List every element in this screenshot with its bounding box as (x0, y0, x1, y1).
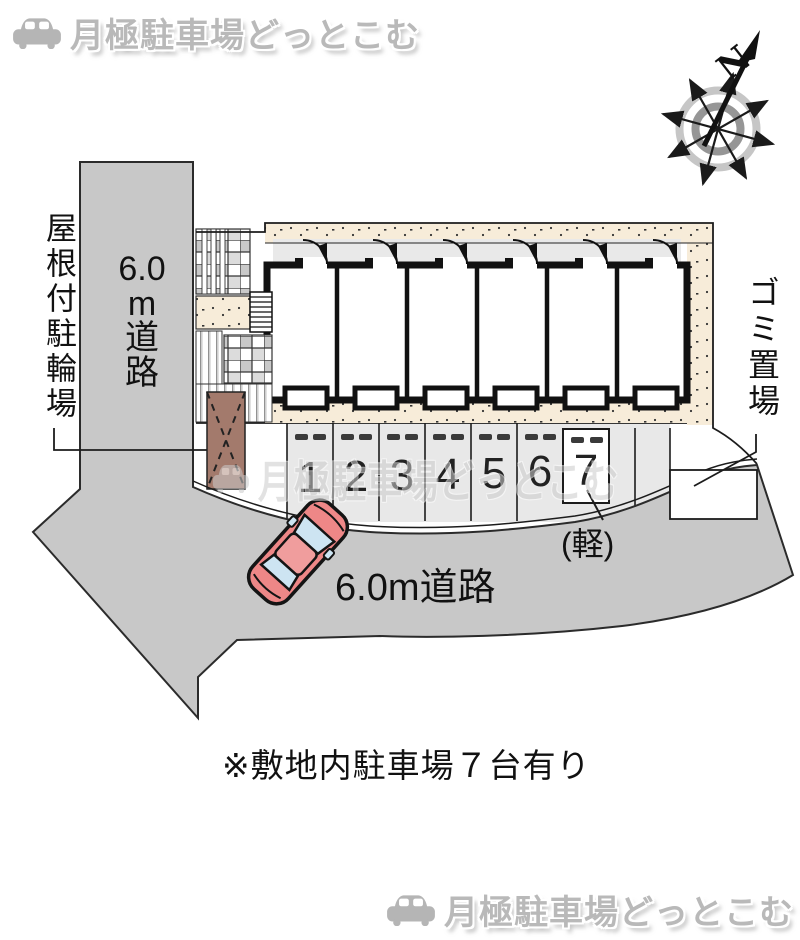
footer-logo-car-icon (386, 893, 436, 926)
kei-note: (軽) (561, 519, 614, 565)
site-note: ※敷地内駐車場７台有り (222, 739, 591, 787)
header-logo-text: 月極駐車場どっとこむ (70, 8, 420, 57)
compass: N (663, 30, 773, 184)
covered-bicycle-label: 屋根付駐輪場 (36, 212, 81, 422)
side-road-label-width: 6.0 (118, 252, 165, 287)
watermark-text: 月極駐車場どっとこむ (258, 446, 619, 510)
header-logo-car-icon (12, 16, 62, 49)
front-road-label: 6.0m道路 (335, 556, 495, 611)
building-right-walkway (687, 243, 713, 425)
side-road-label-michi: 道 (125, 321, 159, 356)
header-logo: 月極駐車場どっとこむ (12, 8, 420, 57)
watermark: 月極駐車場どっとこむ (212, 446, 619, 510)
side-road-label-ro: 路 (125, 356, 159, 391)
site-plan-page: N 屋根付駐輪場 6.0 m 道 路 ゴミ置場 1 2 3 4 5 6 7 (軽… (0, 0, 800, 940)
garbage-spot (670, 470, 757, 519)
footer-logo-text: 月極駐車場どっとこむ (444, 885, 794, 934)
stairs (250, 292, 272, 332)
garbage-label: ゴミ置場 (739, 276, 785, 420)
side-road-label-m: m (128, 287, 156, 322)
watermark-car-icon (212, 463, 250, 493)
footer-logo: 月極駐車場どっとこむ (386, 885, 794, 934)
side-road-label: 6.0 m 道 路 (110, 252, 174, 391)
